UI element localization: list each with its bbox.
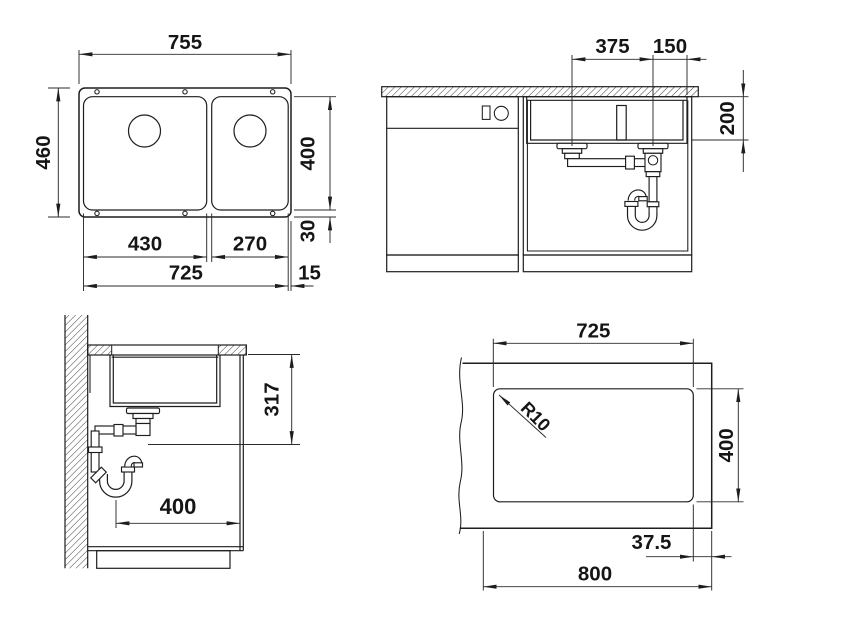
side-view: 317 400 [65, 315, 300, 568]
worktop-cut-back [88, 345, 112, 355]
left-strainer-cup [562, 149, 581, 154]
dim-cutout-depth: 400 [715, 428, 738, 462]
wall-section [65, 315, 88, 568]
front-view-plumbing [557, 143, 668, 226]
right-drain-hole [234, 115, 266, 147]
worktop-section [382, 87, 699, 97]
hook-nut-side [134, 463, 143, 467]
top-view-extension-lines [48, 50, 336, 291]
trap-arm-nut-side [122, 467, 135, 472]
dim-top-right-margin: 15 [298, 262, 321, 285]
cutout-dimension-lines [483, 343, 738, 586]
front-view: 375 150 200 [382, 35, 749, 272]
bowl-divider [617, 106, 627, 141]
dim-top-right-bowl-width: 270 [233, 233, 267, 256]
overflow-hook-nut [639, 197, 647, 201]
pipe-nut-side [114, 425, 123, 437]
bowl-inner-wall [113, 355, 216, 403]
dishwasher-knob-icon [494, 106, 508, 120]
right-bowl [212, 97, 289, 210]
dim-cutout-edge-offset: 37.5 [632, 531, 672, 554]
dim-front-drain-spacing: 375 [595, 35, 629, 58]
pipe-coupling-nut [626, 156, 635, 169]
dim-front-bowl-depth: 200 [716, 101, 739, 135]
sink-section [527, 97, 687, 144]
mounting-holes [95, 90, 275, 216]
strainer-flange-side [127, 408, 160, 414]
right-strainer-cup [643, 149, 662, 154]
worktop-plate [460, 363, 712, 528]
u-bend-nut [625, 202, 638, 207]
sink-technical-drawing: 755 460 400 30 430 270 725 15 [0, 0, 842, 627]
cutout-view: R10 725 400 37.5 800 [459, 320, 744, 591]
strainer-cup-side [133, 414, 153, 419]
strainer-nut-side [136, 419, 150, 424]
side-view-plumbing [89, 408, 160, 493]
downpipe-nut [89, 447, 103, 453]
left-strainer-nut [565, 153, 580, 158]
trap-inlet-pipe [649, 177, 657, 202]
side-view-dimension-lines [116, 355, 292, 524]
drawing-canvas: 755 460 400 30 430 270 725 15 [0, 0, 842, 627]
dim-cutout-worktop-width: 800 [578, 563, 612, 586]
dim-top-bowls-span: 725 [169, 262, 203, 285]
worktop-cut-front [218, 345, 246, 355]
top-view: 755 460 400 30 430 270 725 15 [32, 31, 336, 291]
dim-cutout-corner-radius: R10 [517, 398, 554, 435]
break-line [459, 358, 463, 535]
sink-cabinet-inner-wall [527, 100, 687, 251]
sink-cabinet-plinth [523, 255, 691, 272]
sink-cabinet [523, 97, 691, 255]
dim-side-outlet-height: 317 [261, 382, 284, 416]
side-view-extension-lines [116, 355, 300, 529]
dim-top-bowl-depth: 400 [297, 136, 320, 170]
trap-coupling-nut [647, 202, 659, 207]
dim-top-overall-depth: 460 [32, 135, 55, 169]
dim-top-bottom-margin: 30 [297, 220, 320, 243]
tee-nut [646, 172, 660, 177]
dishwasher-handle-icon [482, 106, 490, 119]
dishwasher-plinth [387, 255, 519, 272]
dishwasher-cabinet [387, 97, 519, 255]
cabinet-plinth [97, 551, 230, 569]
dim-cutout-width: 725 [576, 320, 610, 343]
drain-elbow-side [136, 424, 150, 436]
left-bowl [84, 97, 207, 210]
bowl-outer-wall [110, 355, 220, 407]
dim-top-left-bowl-width: 430 [128, 233, 162, 256]
connecting-pipe [568, 159, 649, 167]
dim-top-overall-width: 755 [168, 31, 202, 54]
dim-side-min-depth: 400 [160, 494, 197, 519]
left-drain-hole [129, 115, 161, 147]
dim-front-drain-to-edge: 150 [653, 35, 687, 58]
sink-flange-outline [79, 88, 291, 217]
cutout-extension-lines [483, 339, 743, 591]
